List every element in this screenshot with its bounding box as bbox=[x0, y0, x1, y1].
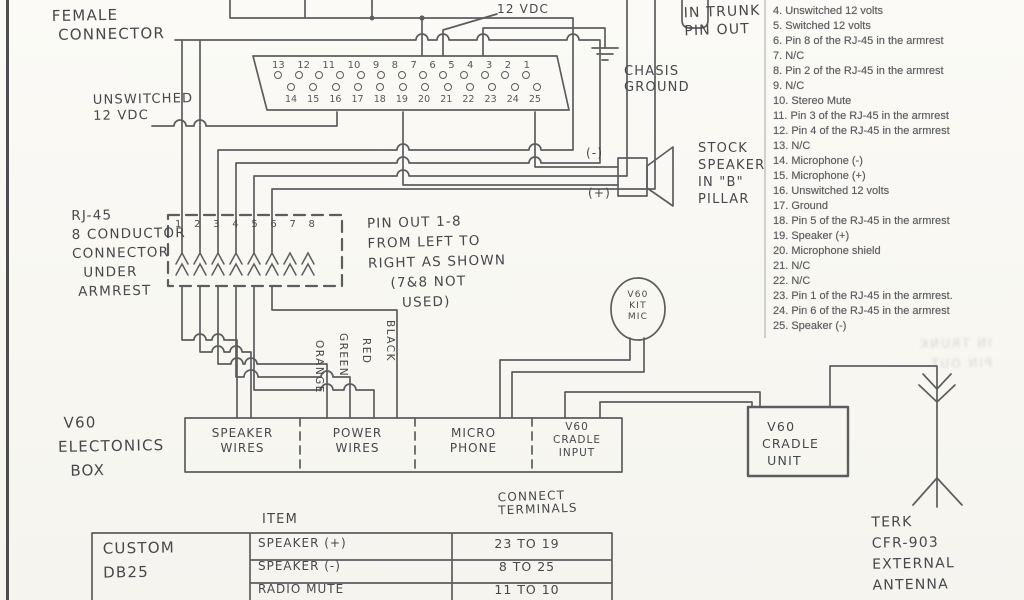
pin-circle bbox=[533, 83, 541, 91]
pin-number: 7 bbox=[289, 219, 295, 230]
trunk-pinout-item: 20. Microphone shield bbox=[773, 244, 1023, 259]
wire-chassis-ground bbox=[483, 28, 605, 56]
terk-antenna-label: TERK CFR-903 EXTERNAL ANTENNA bbox=[871, 511, 955, 596]
trunk-pinout-list: 4. Unswitched 12 volts5. Switched 12 vol… bbox=[773, 4, 1023, 334]
rj45-arrow bbox=[284, 253, 296, 275]
trunk-pinout-item: 23. Pin 1 of the RJ-45 in the armrest. bbox=[773, 289, 1023, 304]
trunk-pinout-item: 16. Unswitched 12 volts bbox=[773, 184, 1023, 199]
chassis-ground-label: CHASIS GROUND bbox=[624, 64, 690, 97]
pin-circle bbox=[399, 83, 407, 91]
pin-number: 20 bbox=[418, 94, 430, 105]
pin-number: 3 bbox=[486, 60, 492, 71]
pin-number: 7 bbox=[411, 60, 417, 71]
pin-number: 22 bbox=[462, 94, 474, 105]
trunk-pinout-item: 5. Switched 12 volts bbox=[773, 19, 1023, 34]
wire-switched-12vdc bbox=[443, 14, 497, 56]
in-trunk-pinout-label: IN TRUNK PIN OUT bbox=[683, 3, 761, 41]
wire-mic-2 bbox=[512, 338, 644, 418]
pin-circle bbox=[377, 71, 385, 79]
table-terminals-cell: 11 TO 10 bbox=[442, 582, 612, 597]
power-wires-box-label: POWER WIRES bbox=[302, 426, 413, 456]
pin-number: 24 bbox=[507, 94, 519, 105]
trunk-pinout-item: 25. Speaker (-) bbox=[773, 319, 1023, 334]
female-connector-label: FEMALE CONNECTOR bbox=[52, 5, 165, 44]
pin-circle bbox=[488, 83, 496, 91]
pin-circle bbox=[287, 83, 295, 91]
pin-number: 8 bbox=[309, 219, 315, 230]
rj45-pin-numbers: 12345678 bbox=[175, 219, 315, 230]
pin-number: 17 bbox=[352, 94, 364, 105]
microphone-box-label: MICRO PHONE bbox=[417, 426, 530, 456]
trunk-pinout-item: 17. Ground bbox=[773, 199, 1023, 214]
pin-number: 25 bbox=[529, 94, 541, 105]
trunk-pinout-item: 14. Microphone (-) bbox=[773, 154, 1023, 169]
pin-circle bbox=[332, 83, 340, 91]
table-terminals-cell: 23 TO 19 bbox=[442, 536, 612, 551]
pin-number: 19 bbox=[396, 94, 408, 105]
pin-circle bbox=[466, 83, 474, 91]
wire-speaker-2 bbox=[200, 286, 251, 418]
table-row: RADIO MUTE11 TO 10 bbox=[252, 581, 612, 600]
rj45-connector-label: RJ-45 8 CONDUCTOR CONNECTOR UNDER ARMRES… bbox=[71, 205, 187, 302]
pin-number: 4 bbox=[467, 60, 473, 71]
stock-speaker-label: STOCK SPEAKER IN "B" PILLAR bbox=[698, 140, 765, 208]
cradle-input-box-label: V60 CRADLE INPUT bbox=[534, 421, 620, 460]
rj45-arrow bbox=[266, 253, 278, 275]
v60-electronics-box-label: V60 ELECTONICS BOX bbox=[57, 409, 165, 483]
pin-circle bbox=[354, 83, 362, 91]
pin-circle bbox=[398, 71, 406, 79]
trunk-pinout-item: 4. Unswitched 12 volts bbox=[773, 4, 1023, 19]
pin-number: 8 bbox=[392, 60, 398, 71]
pin-number: 11 bbox=[322, 60, 335, 71]
rj45-arrow bbox=[230, 253, 242, 275]
pin-number: 1 bbox=[524, 60, 530, 71]
trunk-pinout-item: 18. Pin 5 of the RJ-45 in the armrest bbox=[773, 214, 1023, 229]
trunk-pinout-item: 7. N/C bbox=[773, 49, 1023, 64]
pin-circle bbox=[501, 71, 509, 79]
wire-cradle-link-1 bbox=[565, 392, 760, 418]
antenna-tripod bbox=[913, 478, 962, 507]
table-item-cell: RADIO MUTE bbox=[258, 582, 344, 596]
pinout-note: PIN OUT 1-8 FROM LEFT TO RIGHT AS SHOWN … bbox=[367, 210, 508, 314]
pin-number: 13 bbox=[272, 60, 285, 71]
mic-label: V60 KIT MIC bbox=[623, 290, 653, 323]
pin-number: 9 bbox=[373, 60, 379, 71]
pin-circle bbox=[481, 71, 489, 79]
pin-number: 2 bbox=[194, 219, 200, 230]
wire-color-green-label: GREEN bbox=[337, 333, 349, 377]
trunk-pinout-item: 6. Pin 8 of the RJ-45 in the armrest bbox=[773, 34, 1023, 49]
rj45-arrow bbox=[302, 253, 314, 275]
db25-top-pin-numbers: 13121110987654321 bbox=[272, 60, 530, 71]
trunk-pinout-item: 11. Pin 3 of the RJ-45 in the armrest bbox=[773, 109, 1023, 124]
db25-bottom-pin-numbers: 141516171819202122232425 bbox=[285, 94, 541, 105]
speaker-negative-label: (-) bbox=[586, 146, 603, 161]
pin-number: 16 bbox=[329, 94, 341, 105]
table-terminals-cell: 8 TO 25 bbox=[442, 559, 612, 574]
trunk-pinout-item: 9. N/C bbox=[773, 79, 1023, 94]
wire-cradle-link-2 bbox=[600, 402, 752, 418]
wire-green bbox=[236, 286, 350, 418]
pin-circle bbox=[419, 71, 427, 79]
unswitched-12vdc-label: UNSWITCHED 12 VDC bbox=[93, 91, 194, 125]
pin-number: 18 bbox=[374, 94, 386, 105]
pin-circle bbox=[421, 83, 429, 91]
table-item-cell: SPEAKER (+) bbox=[258, 536, 347, 550]
junction-dot bbox=[419, 15, 424, 20]
table-row: SPEAKER (-)8 TO 25 bbox=[252, 558, 612, 581]
pin-number: 4 bbox=[232, 219, 238, 230]
ground-symbol bbox=[592, 48, 618, 60]
pin-circle bbox=[460, 71, 468, 79]
rj45-arrow bbox=[212, 253, 224, 275]
trunk-pinout-item: 10. Stereo Mute bbox=[773, 94, 1023, 109]
pin-circle bbox=[439, 71, 447, 79]
pin-number: 23 bbox=[485, 94, 497, 105]
pin-number: 5 bbox=[448, 60, 454, 71]
wire-speaker-negative bbox=[535, 112, 618, 167]
wire-color-orange-label: ORANGE bbox=[313, 340, 325, 394]
wiring-diagram-scan: { "diagram": { "ink_color": "#4c4d50", "… bbox=[0, 0, 1024, 600]
trunk-pinout-item: 13. N/C bbox=[773, 139, 1023, 154]
speaker-horn bbox=[647, 147, 673, 206]
pin-number: 3 bbox=[213, 219, 219, 230]
custom-db25-label: CUSTOM DB25 bbox=[103, 535, 176, 584]
wire-antenna bbox=[830, 366, 937, 478]
speaker-body bbox=[618, 158, 647, 196]
wire-color-red-label: RED bbox=[360, 338, 372, 365]
pin-number: 1 bbox=[175, 219, 181, 230]
pin-number: 6 bbox=[270, 219, 276, 230]
table-row: SPEAKER (+)23 TO 19 bbox=[252, 535, 612, 558]
pin-circle bbox=[315, 71, 323, 79]
speaker-wires-box-label: SPEAKER WIRES bbox=[187, 426, 298, 456]
pin-number: 12 bbox=[297, 60, 310, 71]
pin-circle bbox=[522, 71, 530, 79]
cradle-unit-label: V60 CRADLE UNIT bbox=[762, 418, 819, 469]
switched-12vdc-label: SWITCHED 12 VDC bbox=[497, 0, 570, 16]
pin-circle bbox=[511, 83, 519, 91]
table-terminals-header: CONNECT TERMINALS bbox=[498, 489, 578, 518]
ghost-bleedthrough-text: IN TRUNK PIN OUT bbox=[852, 333, 993, 375]
pin-number: 5 bbox=[251, 219, 257, 230]
pin-number: 15 bbox=[307, 94, 319, 105]
pin-circle bbox=[309, 83, 317, 91]
trunk-pinout-item: 21. N/C bbox=[773, 259, 1023, 274]
trunk-pinout-item: 24. Pin 6 of the RJ-45 in the armrest bbox=[773, 304, 1023, 319]
trunk-pinout-item: 8. Pin 2 of the RJ-45 in the armrest bbox=[773, 64, 1023, 79]
pin-circle bbox=[336, 71, 344, 79]
pin-circle bbox=[274, 71, 282, 79]
pin-circle bbox=[295, 71, 303, 79]
pin-number: 10 bbox=[348, 60, 361, 71]
pin-number: 2 bbox=[505, 60, 511, 71]
trunk-pinout-item: 12. Pin 4 of the RJ-45 in the armrest bbox=[773, 124, 1023, 139]
speaker-positive-label: (+) bbox=[588, 186, 611, 201]
pin-number: 6 bbox=[429, 60, 435, 71]
table-item-cell: SPEAKER (-) bbox=[258, 559, 341, 573]
pin-number: 14 bbox=[285, 94, 297, 105]
pin-circle bbox=[357, 71, 365, 79]
db25-top-pin-circles bbox=[274, 71, 530, 79]
wire-color-black-label: BLACK bbox=[384, 320, 396, 362]
rj45-pin-arrows bbox=[176, 253, 314, 275]
pin-number: 21 bbox=[440, 94, 452, 105]
pin-circle bbox=[376, 83, 384, 91]
db25-bottom-pin-circles bbox=[287, 83, 541, 91]
pin-circle bbox=[444, 83, 452, 91]
table-item-header: ITEM bbox=[262, 512, 298, 528]
rj45-arrow bbox=[194, 253, 206, 275]
rj45-arrow bbox=[248, 253, 260, 275]
junction-dot bbox=[370, 16, 375, 21]
trunk-pinout-item: 22. N/C bbox=[773, 274, 1023, 289]
trunk-pinout-item: 19. Speaker (+) bbox=[773, 229, 1023, 244]
trunk-pinout-item: 15. Microphone (+) bbox=[773, 169, 1023, 184]
